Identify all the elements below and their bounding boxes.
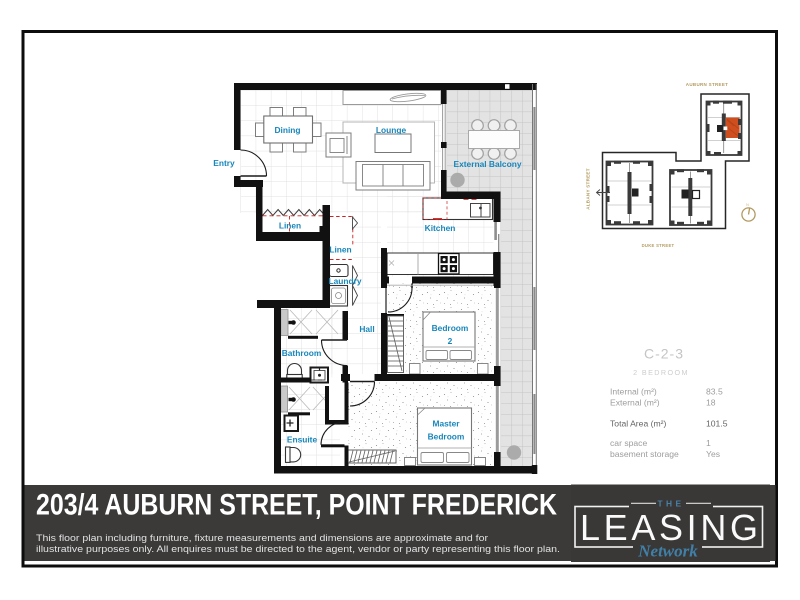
- svg-text:101.5: 101.5: [706, 419, 728, 429]
- svg-text:Master: Master: [433, 419, 461, 429]
- svg-text:2 BEDROOM: 2 BEDROOM: [633, 368, 689, 377]
- svg-text:ALBANY STREET: ALBANY STREET: [586, 168, 591, 210]
- svg-text:Lounge: Lounge: [376, 125, 407, 135]
- svg-text:Linen: Linen: [279, 221, 301, 231]
- svg-text:Bathroom: Bathroom: [282, 348, 322, 358]
- svg-text:83.5: 83.5: [706, 387, 723, 397]
- svg-text:Yes: Yes: [706, 449, 720, 459]
- svg-text:Bedroom: Bedroom: [428, 432, 465, 442]
- svg-text:1: 1: [706, 438, 711, 448]
- svg-text:18: 18: [706, 398, 716, 408]
- svg-text:Hall: Hall: [359, 324, 374, 334]
- svg-text:2: 2: [448, 336, 453, 346]
- svg-text:Entry: Entry: [213, 158, 235, 168]
- svg-text:basement storage: basement storage: [610, 449, 679, 459]
- svg-text:Laundry: Laundry: [328, 276, 361, 286]
- svg-text:AUBURN STREET: AUBURN STREET: [686, 82, 728, 87]
- svg-text:C-2-3: C-2-3: [644, 346, 684, 362]
- svg-text:Dining: Dining: [274, 125, 300, 135]
- svg-text:Linen: Linen: [329, 245, 351, 255]
- svg-text:Internal (m²): Internal (m²): [610, 387, 657, 397]
- svg-text:car space: car space: [610, 438, 647, 448]
- svg-text:Network: Network: [637, 542, 698, 561]
- svg-text:Kitchen: Kitchen: [425, 223, 456, 233]
- svg-text:Ensuite: Ensuite: [287, 435, 318, 445]
- svg-text:illustrative purposes only. Al: illustrative purposes only. All enquires…: [36, 544, 560, 555]
- svg-text:Bedroom: Bedroom: [432, 323, 469, 333]
- svg-text:Total Area (m²): Total Area (m²): [610, 419, 666, 429]
- svg-text:DUKE STREET: DUKE STREET: [642, 243, 675, 248]
- svg-text:N: N: [746, 202, 749, 207]
- svg-text:External Balcony: External Balcony: [454, 159, 522, 169]
- svg-text:203/4 AUBURN STREET, POINT FRE: 203/4 AUBURN STREET, POINT FREDERICK: [36, 489, 558, 522]
- svg-text:External (m²): External (m²): [610, 398, 660, 408]
- svg-text:This floor plan including furn: This floor plan including furniture, fix…: [36, 533, 489, 544]
